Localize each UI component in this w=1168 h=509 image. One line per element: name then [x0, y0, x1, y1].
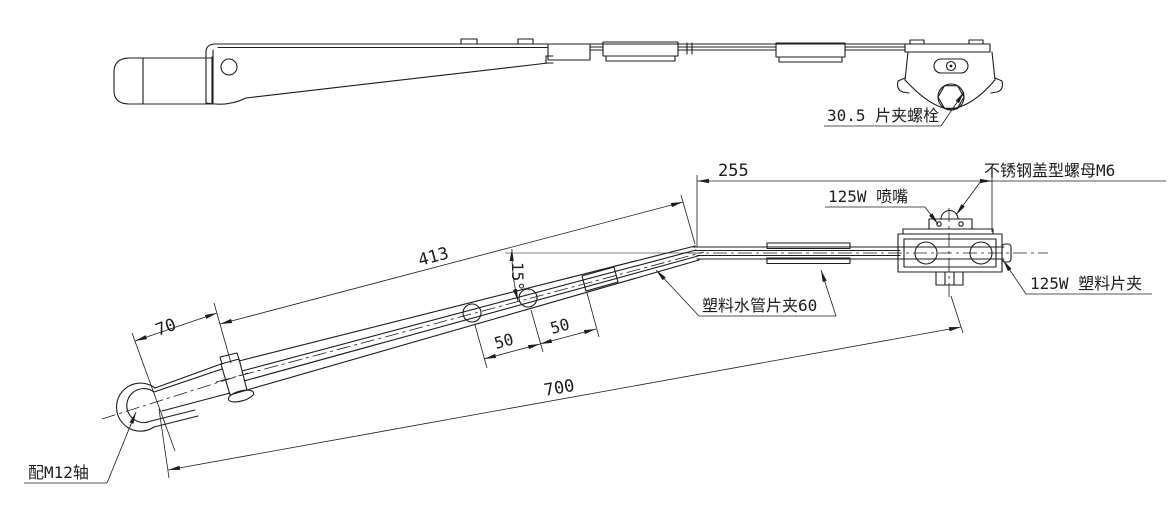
label-nozzle: 125W 喷嘴 [825, 187, 938, 224]
front-view: 70 413 255 700 50 50 [24, 161, 1166, 483]
clip-bolt-label: 30.5 片夹螺栓 [827, 106, 939, 125]
plastic-clip-label: 125W 塑料片夹 [1030, 274, 1142, 293]
pipe-clip-straight-top [767, 243, 850, 249]
arm-tube [239, 246, 699, 390]
dim-50-a: 50 [492, 330, 516, 353]
dim-70: 70 [153, 315, 179, 341]
nozzle-label: 125W 喷嘴 [828, 187, 908, 206]
top-side-view: 30.5 片夹螺栓 [114, 39, 1002, 126]
arm-side [216, 39, 905, 98]
dim-413: 413 [416, 244, 451, 271]
dim-255: 255 [718, 161, 749, 181]
pivot-hook [117, 364, 230, 431]
shaft-label: 配M12轴 [28, 463, 89, 482]
clip-bolt [938, 84, 964, 110]
label-plastic-clip: 125W 塑料片夹 [1003, 260, 1152, 294]
label-pipe-clip: 塑料水管片夹60 [656, 270, 836, 316]
arm-head-side [114, 44, 246, 104]
clamp-nut [936, 272, 963, 285]
dim-15deg: 15° [508, 262, 527, 291]
dimension-angle-15: 15° [508, 249, 527, 301]
label-clip-bolt: 30.5 片夹螺栓 [824, 92, 964, 126]
cap-nut-label: 不锈钢盖型螺母M6 [984, 161, 1115, 180]
arm-hole-2 [519, 289, 537, 307]
dimension-413: 413 [220, 195, 695, 324]
arm-head-junction [220, 353, 255, 404]
plastic-clip-assembly [898, 211, 1002, 286]
arm-hole-1 [463, 304, 481, 322]
drawing-canvas: 30.5 片夹螺栓 [0, 0, 1168, 509]
pipe-clip-label: 塑料水管片夹60 [702, 296, 817, 315]
spray-bar-clamp-side [898, 40, 1003, 110]
label-shaft: 配M12轴 [24, 412, 136, 483]
tube-clip-side-2 [776, 43, 845, 57]
arm-centerline [216, 252, 704, 382]
cap-nut-dome [941, 211, 958, 220]
label-cap-nut: 不锈钢盖型螺母M6 [956, 161, 1166, 215]
dimension-70: 70 [132, 303, 231, 451]
wiper-arm-drawing: 30.5 片夹螺栓 [0, 0, 1168, 509]
pivot-hole [221, 59, 237, 75]
dim-50-b: 50 [548, 315, 572, 338]
